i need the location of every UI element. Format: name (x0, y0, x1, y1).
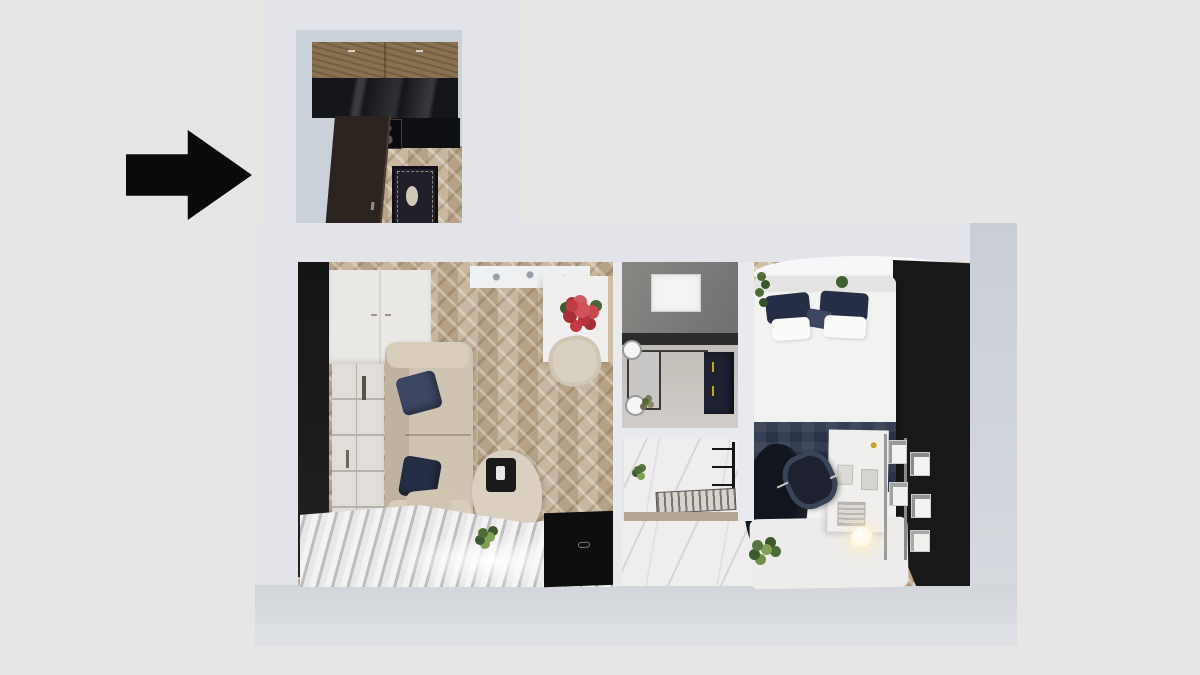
kitchen-counter (312, 78, 458, 118)
headboard-plants (836, 276, 848, 288)
picture-frame (911, 494, 931, 518)
rack-arm (712, 484, 733, 486)
kitchen-upper-cabinets (312, 42, 458, 78)
wall-living-bath (613, 262, 622, 586)
kitchen-rug (392, 166, 438, 228)
bathroom (620, 262, 740, 434)
outer-wall-right (970, 223, 1017, 647)
sofa-armrest-top (387, 342, 469, 368)
desk-gold-knob (871, 442, 877, 448)
shelf-slot (362, 376, 366, 400)
wardrobe-handle (371, 314, 377, 316)
bed-pillow-white (823, 315, 866, 339)
headboard (754, 276, 896, 292)
wardrobe-handle (385, 314, 391, 316)
rack-arm (712, 466, 733, 468)
picture-frame (910, 530, 930, 552)
phone (496, 466, 505, 480)
rack-arm (712, 448, 733, 450)
bathroom-plant (642, 398, 649, 405)
rug-medallion (406, 186, 418, 206)
toilet-bottom-wall (624, 512, 738, 521)
tv-handle (578, 542, 590, 548)
floor-lamp (851, 527, 873, 549)
picture-frame (888, 440, 907, 464)
towel-rack (710, 442, 736, 494)
navy-cabinet (704, 352, 734, 414)
sofa (385, 342, 473, 530)
arrow-right-icon (126, 130, 252, 220)
table-tray (486, 458, 516, 492)
cabinet-handle (348, 50, 355, 52)
bedroom-plant (752, 540, 763, 551)
wall-bath-toilet (620, 428, 740, 438)
desk-paper (862, 470, 877, 489)
patterned-rug (655, 488, 736, 514)
sofa-seam (405, 434, 471, 436)
flower-bouquet (566, 300, 578, 312)
picture-frame (910, 452, 930, 476)
desk-vent (837, 502, 865, 526)
gallery-rails (884, 434, 932, 560)
toilet-room (624, 438, 738, 514)
shelf-slot (346, 450, 349, 468)
toilet-plant (634, 466, 642, 474)
kitchen-door (325, 116, 391, 228)
gold-handle (712, 386, 714, 396)
hallway-floor (622, 521, 758, 586)
door-handle (371, 202, 375, 210)
bathroom-ceiling-light (651, 274, 701, 312)
outer-wall-bottom (255, 585, 1017, 647)
wall-bath-bedroom (738, 262, 754, 521)
gold-handle (712, 362, 714, 372)
tv-cabinet (544, 511, 615, 587)
table-plant (478, 528, 488, 538)
bedside-plant-top (757, 272, 766, 281)
sink-bowl (622, 340, 642, 360)
towel-bar (658, 350, 708, 352)
kitchen-room (296, 30, 462, 228)
bed-pillow-white (771, 317, 810, 342)
rail (884, 434, 887, 560)
picture-frame (889, 482, 908, 506)
floor-plan-render (0, 0, 1200, 675)
cabinet-handle (416, 50, 423, 52)
